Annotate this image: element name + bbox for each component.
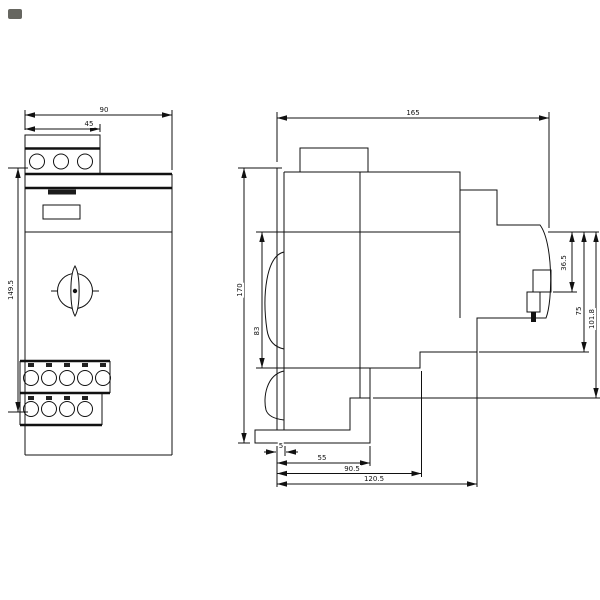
terminal-hole [60,371,75,386]
marking-window [43,205,80,219]
dim-side-body-depth: 101.8 [588,308,596,330]
front-housing [25,135,172,455]
terminal-hole [78,371,93,386]
terminal-hole [42,402,57,417]
terminal-hole [54,154,69,169]
din-rail-profile [265,168,284,430]
side-housing-outline [255,172,551,443]
terminal-hole [96,371,111,386]
drawing-linework [0,0,600,600]
dim-side-step2: 90.5 [343,465,361,473]
dim-side-height-mid: 83 [253,326,261,337]
dim-side-knob-depth: 36.5 [560,254,568,272]
dim-side-rail-offset: 5 [278,442,284,450]
terminal-hole [24,402,39,417]
side-dimensions [238,112,600,487]
terminal-hole [30,154,45,169]
terminal-hole [78,154,93,169]
dim-side-mid-depth: 75 [575,306,583,317]
front-bottom-terminal-blocks [20,361,111,425]
side-view [238,112,600,487]
front-view [8,110,172,455]
dim-front-height: 149.5 [7,279,15,301]
side-top-terminal-block [300,148,368,172]
dim-side-step3: 120.5 [363,475,385,483]
brand-label-strip [48,190,76,195]
dim-side-step1: 55 [317,454,328,462]
front-top-terminal-block [25,135,100,174]
terminal-hole [24,371,39,386]
dim-front-terminal-width: 45 [84,120,95,128]
dim-side-depth-total: 165 [405,109,420,117]
dim-side-height-total: 170 [236,282,244,297]
terminal-hole [42,371,57,386]
dim-front-width-total: 90 [99,106,110,114]
rotary-knob [51,266,99,316]
terminal-hole [60,402,75,417]
dimension-drawing: 90 45 149.5 165 170 83 36.5 75 101.8 5 5… [0,0,600,600]
terminal-hole [78,402,93,417]
